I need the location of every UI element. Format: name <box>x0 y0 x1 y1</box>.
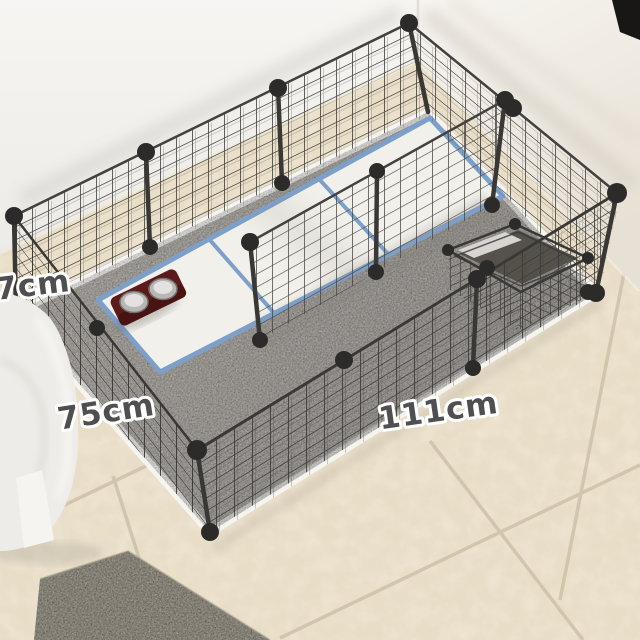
scene: 7cm 75cm 111cm <box>0 0 640 640</box>
food-bowl <box>149 279 177 300</box>
food-bowl <box>120 292 148 313</box>
product-photo: 7cm 75cm 111cm <box>0 0 640 640</box>
